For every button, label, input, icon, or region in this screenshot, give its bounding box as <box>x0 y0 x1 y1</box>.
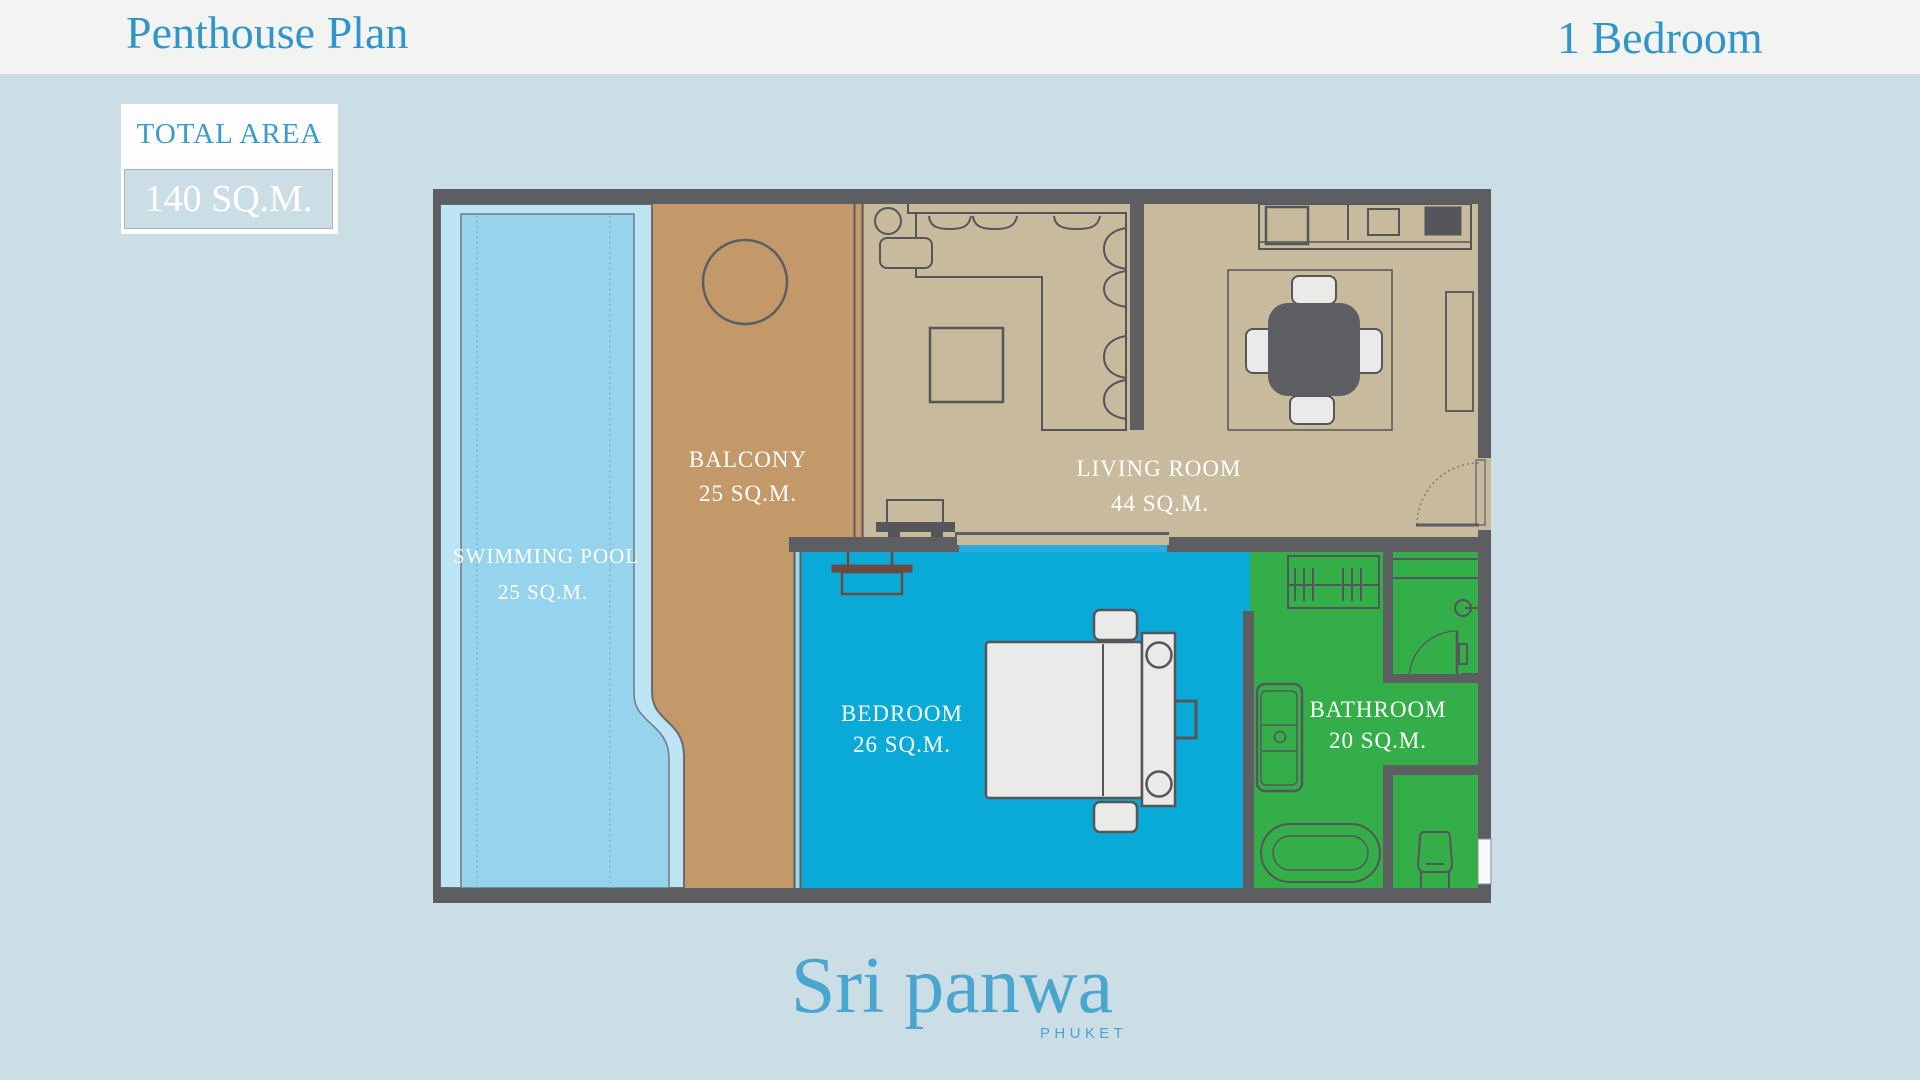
svg-text:BEDROOM: BEDROOM <box>841 701 963 726</box>
svg-text:SWIMMING POOL: SWIMMING POOL <box>453 544 639 568</box>
svg-text:44 SQ.M.: 44 SQ.M. <box>1111 491 1209 516</box>
svg-text:25 SQ.M.: 25 SQ.M. <box>699 481 797 506</box>
svg-text:20 SQ.M.: 20 SQ.M. <box>1329 728 1427 753</box>
svg-text:26 SQ.M.: 26 SQ.M. <box>853 732 951 757</box>
svg-text:BALCONY: BALCONY <box>689 447 807 472</box>
svg-text:25 SQ.M.: 25 SQ.M. <box>498 580 588 604</box>
svg-text:BATHROOM: BATHROOM <box>1309 697 1446 722</box>
svg-text:LIVING ROOM: LIVING ROOM <box>1077 456 1242 481</box>
